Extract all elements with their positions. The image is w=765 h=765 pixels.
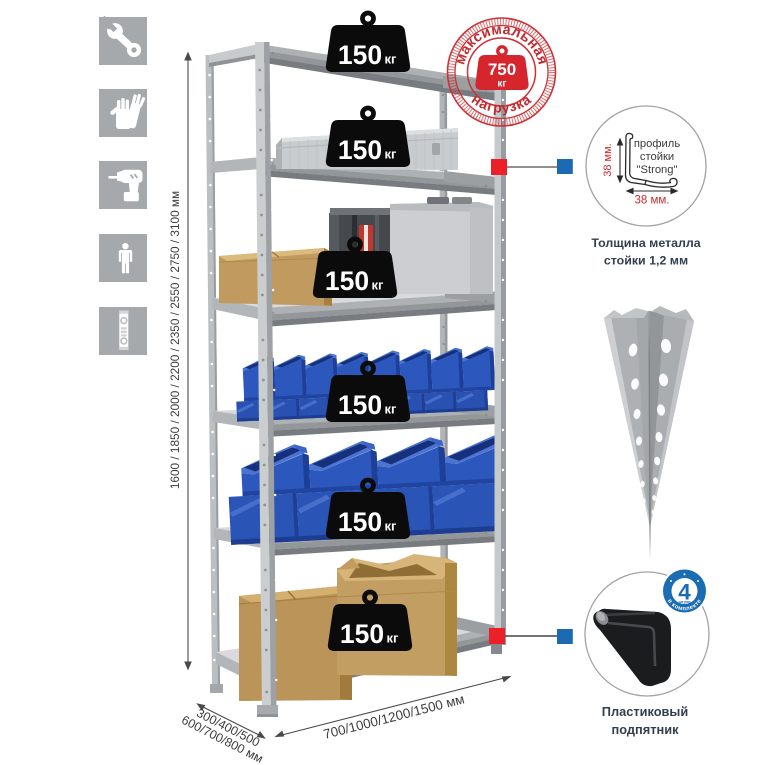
svg-text:кг: кг (497, 79, 506, 90)
svg-text:Пластиковый: Пластиковый (602, 704, 688, 719)
svg-text:подпятник: подпятник (612, 722, 680, 737)
svg-text:штуки: штуки (678, 599, 691, 604)
svg-text:профиль: профиль (634, 138, 680, 150)
svg-text:стойки 1,2 мм: стойки 1,2 мм (604, 254, 688, 268)
svg-text:38 мм.: 38 мм. (635, 195, 670, 207)
svg-text:750: 750 (488, 60, 516, 79)
svg-text:стойки: стойки (640, 151, 674, 163)
svg-text:1600 / 1850 / 2000 / 2200 / 23: 1600 / 1850 / 2000 / 2200 / 2350 / 2550 … (168, 191, 182, 489)
svg-text:"Strong": "Strong" (637, 164, 678, 176)
svg-text:Толщина металла: Толщина металла (591, 236, 700, 250)
svg-text:38 мм.: 38 мм. (602, 143, 614, 176)
